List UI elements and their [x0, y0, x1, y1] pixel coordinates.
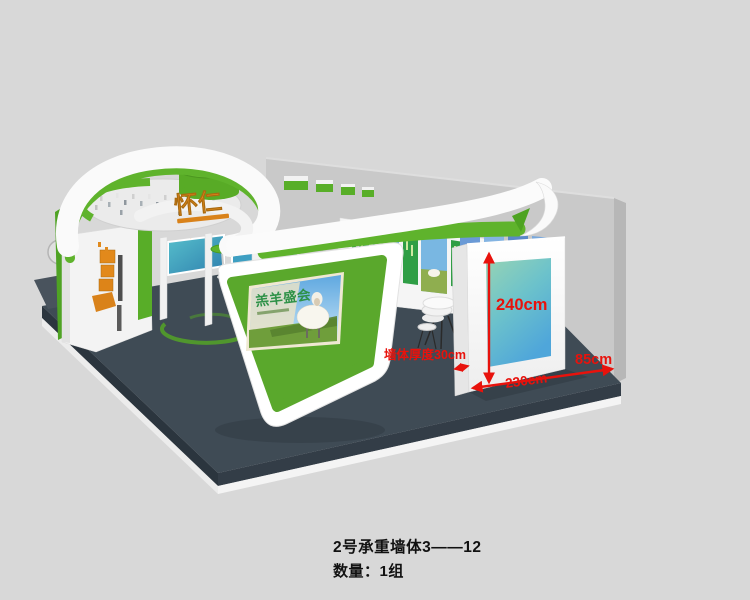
caption-quantity: 数量：1组: [333, 560, 481, 581]
booth-render-illustration: 怀仁 羔羊盛会: [0, 0, 750, 600]
dim-height-label: 240cm: [496, 296, 547, 314]
poster-photo-2: [421, 235, 447, 294]
dim-thickness-label: 墙体厚度30cm: [384, 347, 466, 362]
caption-title: 2号承重墙体3——12: [333, 535, 481, 557]
display-shadow: [215, 417, 385, 443]
caption-block: 2号承重墙体3——12 数量：1组: [333, 535, 481, 581]
dim-side-label: 85cm: [575, 352, 612, 368]
booth-render-page: 怀仁 羔羊盛会: [0, 0, 750, 600]
